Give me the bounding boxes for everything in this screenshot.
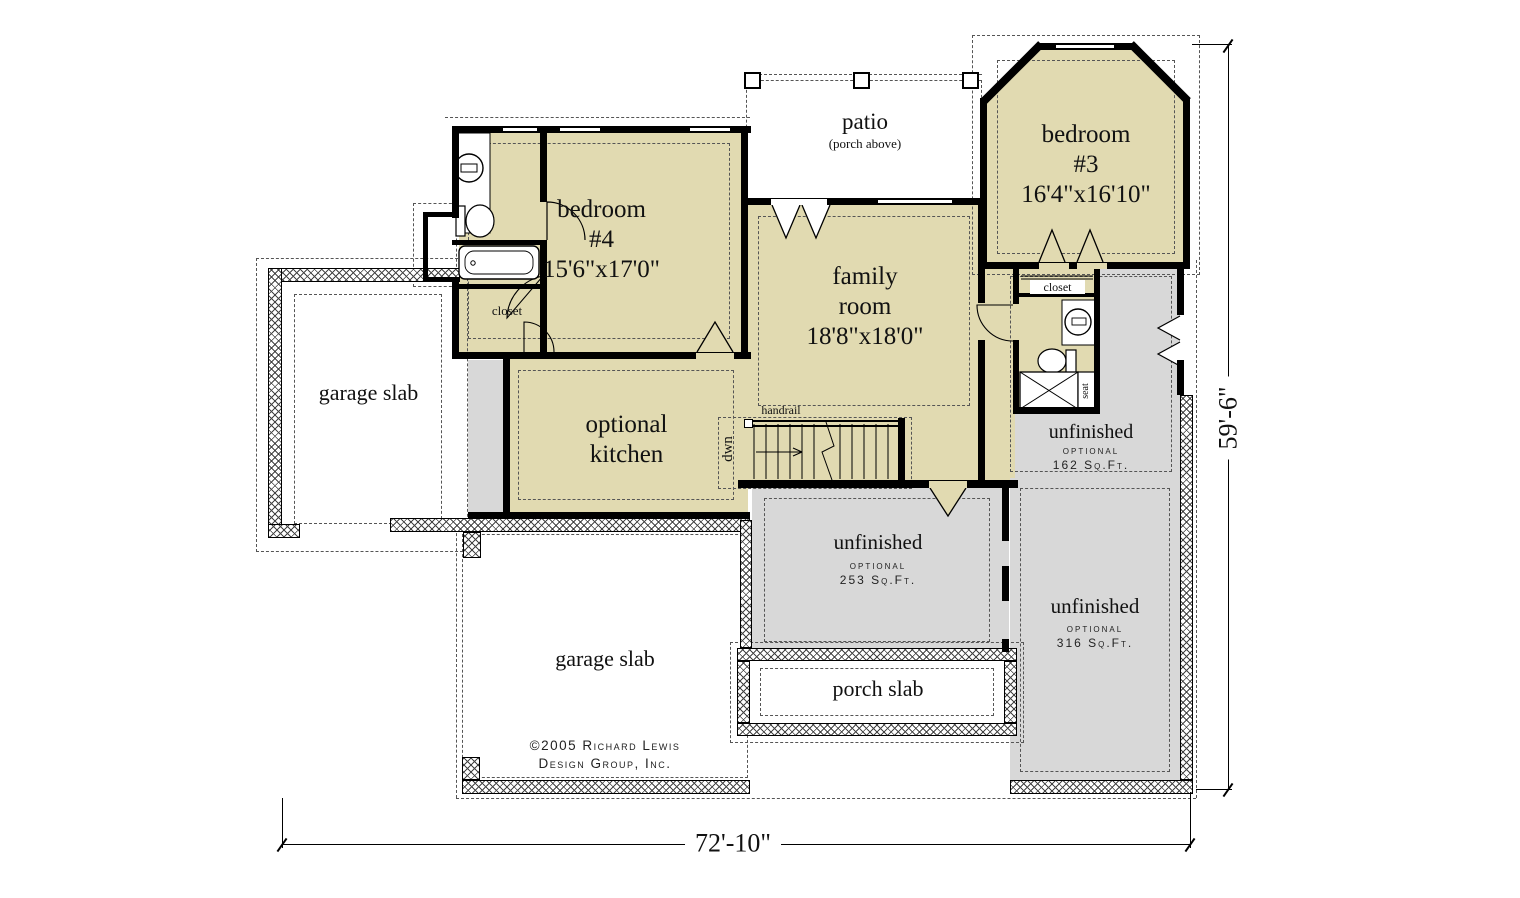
shower-seat-label: seat — [1080, 373, 1092, 409]
unf253-area: 253 Sq.Ft. — [760, 573, 996, 587]
bath3-door — [977, 305, 1013, 341]
dwn-text: dwn — [720, 436, 736, 462]
bedroom3-label: bedroom #3 16'4"x16'10" — [982, 120, 1190, 210]
unf316-title: unfinished — [1012, 594, 1178, 619]
handrail-text: handrail — [761, 403, 800, 417]
bedroom4-dims: 15'6"x17'0" — [455, 255, 748, 285]
window-bedroom4-3 — [690, 126, 730, 133]
opening-253-316-a — [1002, 541, 1009, 566]
stair-direction-arrow — [756, 448, 802, 456]
family-dims: 18'8"x18'0" — [748, 322, 982, 352]
patio-post-1 — [744, 72, 761, 89]
unf162-area: 162 Sq.Ft. — [1005, 458, 1177, 472]
window-bedroom3 — [1056, 43, 1114, 50]
bedroom3-diagonal-wall-right — [1131, 44, 1188, 101]
bedroom4-name: bedroom — [455, 195, 748, 225]
copyright-line1: ©2005 Richard Lewis — [460, 737, 750, 755]
kitchen-line2: kitchen — [505, 440, 748, 470]
wall-bath3-right — [1094, 268, 1100, 413]
dim-width-text: 72'-10" — [695, 828, 771, 857]
family-line1: family — [748, 262, 982, 292]
bath4-faucet — [461, 164, 477, 172]
unf162-title: unfinished — [1005, 420, 1177, 444]
dim-height-text: 59'-6" — [1213, 387, 1242, 450]
dim-bottom-label: 72'-10" — [685, 827, 781, 858]
bath3-toilet-tank — [1066, 350, 1076, 373]
bedroom3-diagonal-wall-left — [984, 44, 1041, 101]
wall-bath3-left — [1013, 268, 1019, 413]
kitchen-label: optional kitchen — [505, 410, 748, 470]
family-line2: room — [748, 292, 982, 322]
patio-post-3 — [962, 72, 979, 89]
porch-text: porch slab — [832, 676, 923, 701]
wall-alcove-bottom — [423, 277, 459, 282]
patio-name: patio — [748, 108, 982, 136]
bedroom3-dims: 16'4"x16'10" — [982, 180, 1190, 210]
seat-text: seat — [1080, 383, 1091, 399]
copyright: ©2005 Richard Lewis Design Group, Inc. — [460, 737, 750, 772]
dim-bottom-ext-right — [1190, 792, 1191, 848]
unf162-sub: optional — [1005, 445, 1177, 458]
window-family-patio — [878, 198, 952, 205]
handrail-label: handrail — [746, 403, 816, 417]
closet-bedroom4-label: closet — [478, 303, 536, 319]
wall-alcove-left — [423, 212, 428, 282]
floor-plan: bedroom #4 15'6"x17'0" bedroom #3 16'4"x… — [0, 0, 1520, 898]
dim-bottom-ext-left — [282, 798, 283, 848]
window-bedroom4-1 — [503, 126, 537, 133]
opening-bath3-door — [1013, 304, 1019, 340]
unfinished253-door — [930, 488, 966, 516]
wall-kitchen-bottom — [468, 512, 750, 518]
unf253-sub: optional — [760, 560, 996, 573]
opening-patio-door — [771, 199, 827, 205]
wall-stairs-right — [898, 418, 905, 488]
opening-bedroom4-door — [696, 353, 734, 359]
wall-unfinished162-right-upper — [1177, 268, 1184, 315]
garage-left-text: garage slab — [319, 380, 419, 405]
bedroom3-double-door — [1039, 230, 1103, 262]
wall-bedroom4-left-lower — [452, 280, 459, 359]
unf316-sub: optional — [1012, 623, 1178, 636]
opening-bedroom3-door-right — [1077, 263, 1107, 269]
bedroom4-door — [697, 322, 733, 352]
unfinished162-label: unfinished optional 162 Sq.Ft. — [1005, 420, 1177, 473]
opening-bedroom3-door-left — [1039, 263, 1069, 269]
closet4-text: closet — [492, 303, 522, 318]
dim-right-label: 59'-6" — [1212, 377, 1243, 460]
bedroom3-number: #3 — [982, 150, 1190, 180]
garage-bottom-text: garage slab — [555, 646, 655, 671]
patio-sub: (porch above) — [748, 136, 982, 152]
handrail-line — [748, 421, 898, 426]
unfinished162-double-door — [1158, 316, 1180, 366]
copyright-line2: Design Group, Inc. — [460, 755, 750, 773]
wall-bath4-divider-upper — [540, 133, 547, 202]
opening-family-253-door — [929, 481, 967, 488]
closet-bedroom3-label: closet — [1030, 280, 1085, 294]
window-bedroom4-2 — [560, 126, 600, 133]
opening-253-316-b — [1002, 601, 1009, 639]
family-room-label: family room 18'8"x18'0" — [748, 262, 982, 352]
closet4-door — [524, 322, 554, 352]
wall-family-bottom — [738, 480, 1018, 488]
porch-slab-label: porch slab — [752, 676, 1004, 702]
unf316-area: 316 Sq.Ft. — [1012, 636, 1178, 650]
bedroom4-number: #4 — [455, 225, 748, 255]
wall-family-right-lower — [978, 340, 985, 480]
patio-label: patio (porch above) — [748, 108, 982, 151]
stair-break-line — [822, 422, 834, 480]
unf253-title: unfinished — [760, 530, 996, 555]
garage-slab-bottom-label: garage slab — [460, 646, 750, 672]
unfinished316-label: unfinished optional 316 Sq.Ft. — [1012, 594, 1178, 651]
dim-right-ext-bottom — [1196, 789, 1232, 790]
unfinished253-label: unfinished optional 253 Sq.Ft. — [760, 530, 996, 588]
bath3-toilet-bowl — [1038, 349, 1066, 373]
kitchen-line1: optional — [505, 410, 748, 440]
closet3-shelf — [1021, 276, 1093, 279]
garage-slab-left-label: garage slab — [282, 380, 455, 406]
closet3-text: closet — [1044, 280, 1072, 294]
wall-alcove-top — [423, 212, 459, 217]
stairs-dwn-label: dwn — [719, 427, 737, 471]
dim-right-ext-top — [1192, 44, 1232, 45]
bath3-faucet — [1072, 318, 1086, 325]
bedroom4-label: bedroom #4 15'6"x17'0" — [455, 195, 748, 285]
wall-unfinished162-right-lower — [1177, 360, 1184, 395]
patio-post-2 — [853, 72, 870, 89]
patio-double-door — [772, 205, 830, 238]
bedroom3-name: bedroom — [982, 120, 1190, 150]
